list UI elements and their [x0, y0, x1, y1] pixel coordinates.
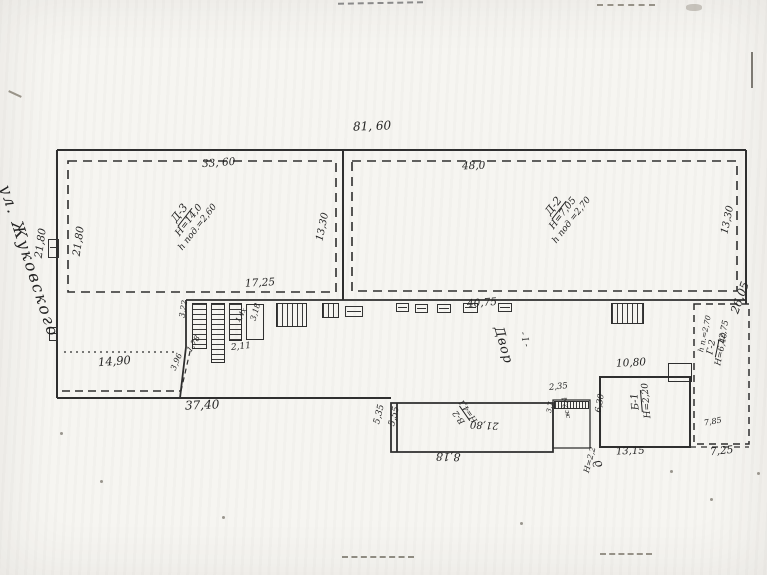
- plan-linework: [0, 0, 767, 575]
- shed-hatch-e: [276, 303, 307, 327]
- scan-speck: [670, 470, 673, 473]
- porch-mark: [437, 304, 451, 313]
- scan-speck: [100, 480, 103, 483]
- dim-d2-top: 48,0: [462, 161, 486, 172]
- scan-speck: [757, 472, 760, 475]
- courtyard-edge-solid: [180, 300, 746, 398]
- dim-v2-length: 21,80: [470, 418, 499, 429]
- scan-speck: [710, 498, 713, 501]
- dim-b1-top: 10,80: [616, 357, 647, 369]
- dim-g2-width-outer: 7,25: [710, 445, 734, 458]
- scan-noise-dash: [600, 553, 652, 555]
- dim-b1-bottom: 13,15: [616, 447, 645, 458]
- scan-speck: [222, 516, 225, 519]
- dim-total-top: 81, 60: [353, 119, 392, 132]
- scan-speck: [60, 432, 63, 435]
- porch-mark: [415, 304, 428, 313]
- dim-v2-bottom: 8,18: [436, 451, 461, 463]
- dim-courtyard-top: 17,25: [245, 277, 276, 289]
- shed-hatch-f: [611, 303, 644, 324]
- stairs-hatch-b: [211, 303, 225, 363]
- scan-noise-blob: [686, 4, 702, 11]
- scan-noise-line: [751, 52, 753, 88]
- wall-bay-mark: [48, 239, 59, 258]
- scan-speck: [520, 522, 523, 525]
- dim-shed-top: 2,35: [549, 382, 569, 392]
- dim-bottom-left: 37,40: [185, 398, 220, 411]
- scanned-site-plan: 81, 60 26,05 37,40 ул. Жуковского 33, 60…: [0, 0, 767, 575]
- porch-mark: [498, 303, 512, 312]
- porch-mark: [396, 303, 409, 312]
- porch-mark: [345, 306, 363, 317]
- porch-hatch-left: [322, 303, 339, 318]
- dim-left-yard: 14,90: [98, 355, 132, 369]
- b1-porch-box: [668, 363, 692, 382]
- building-b1-label: Б-1 Н=2,20: [628, 375, 655, 427]
- scan-noise-dash: [597, 4, 655, 6]
- dim-courtyard-length: 40,75: [467, 297, 498, 310]
- shed-hatch-band: [554, 401, 589, 409]
- scan-noise-dash: [342, 556, 414, 558]
